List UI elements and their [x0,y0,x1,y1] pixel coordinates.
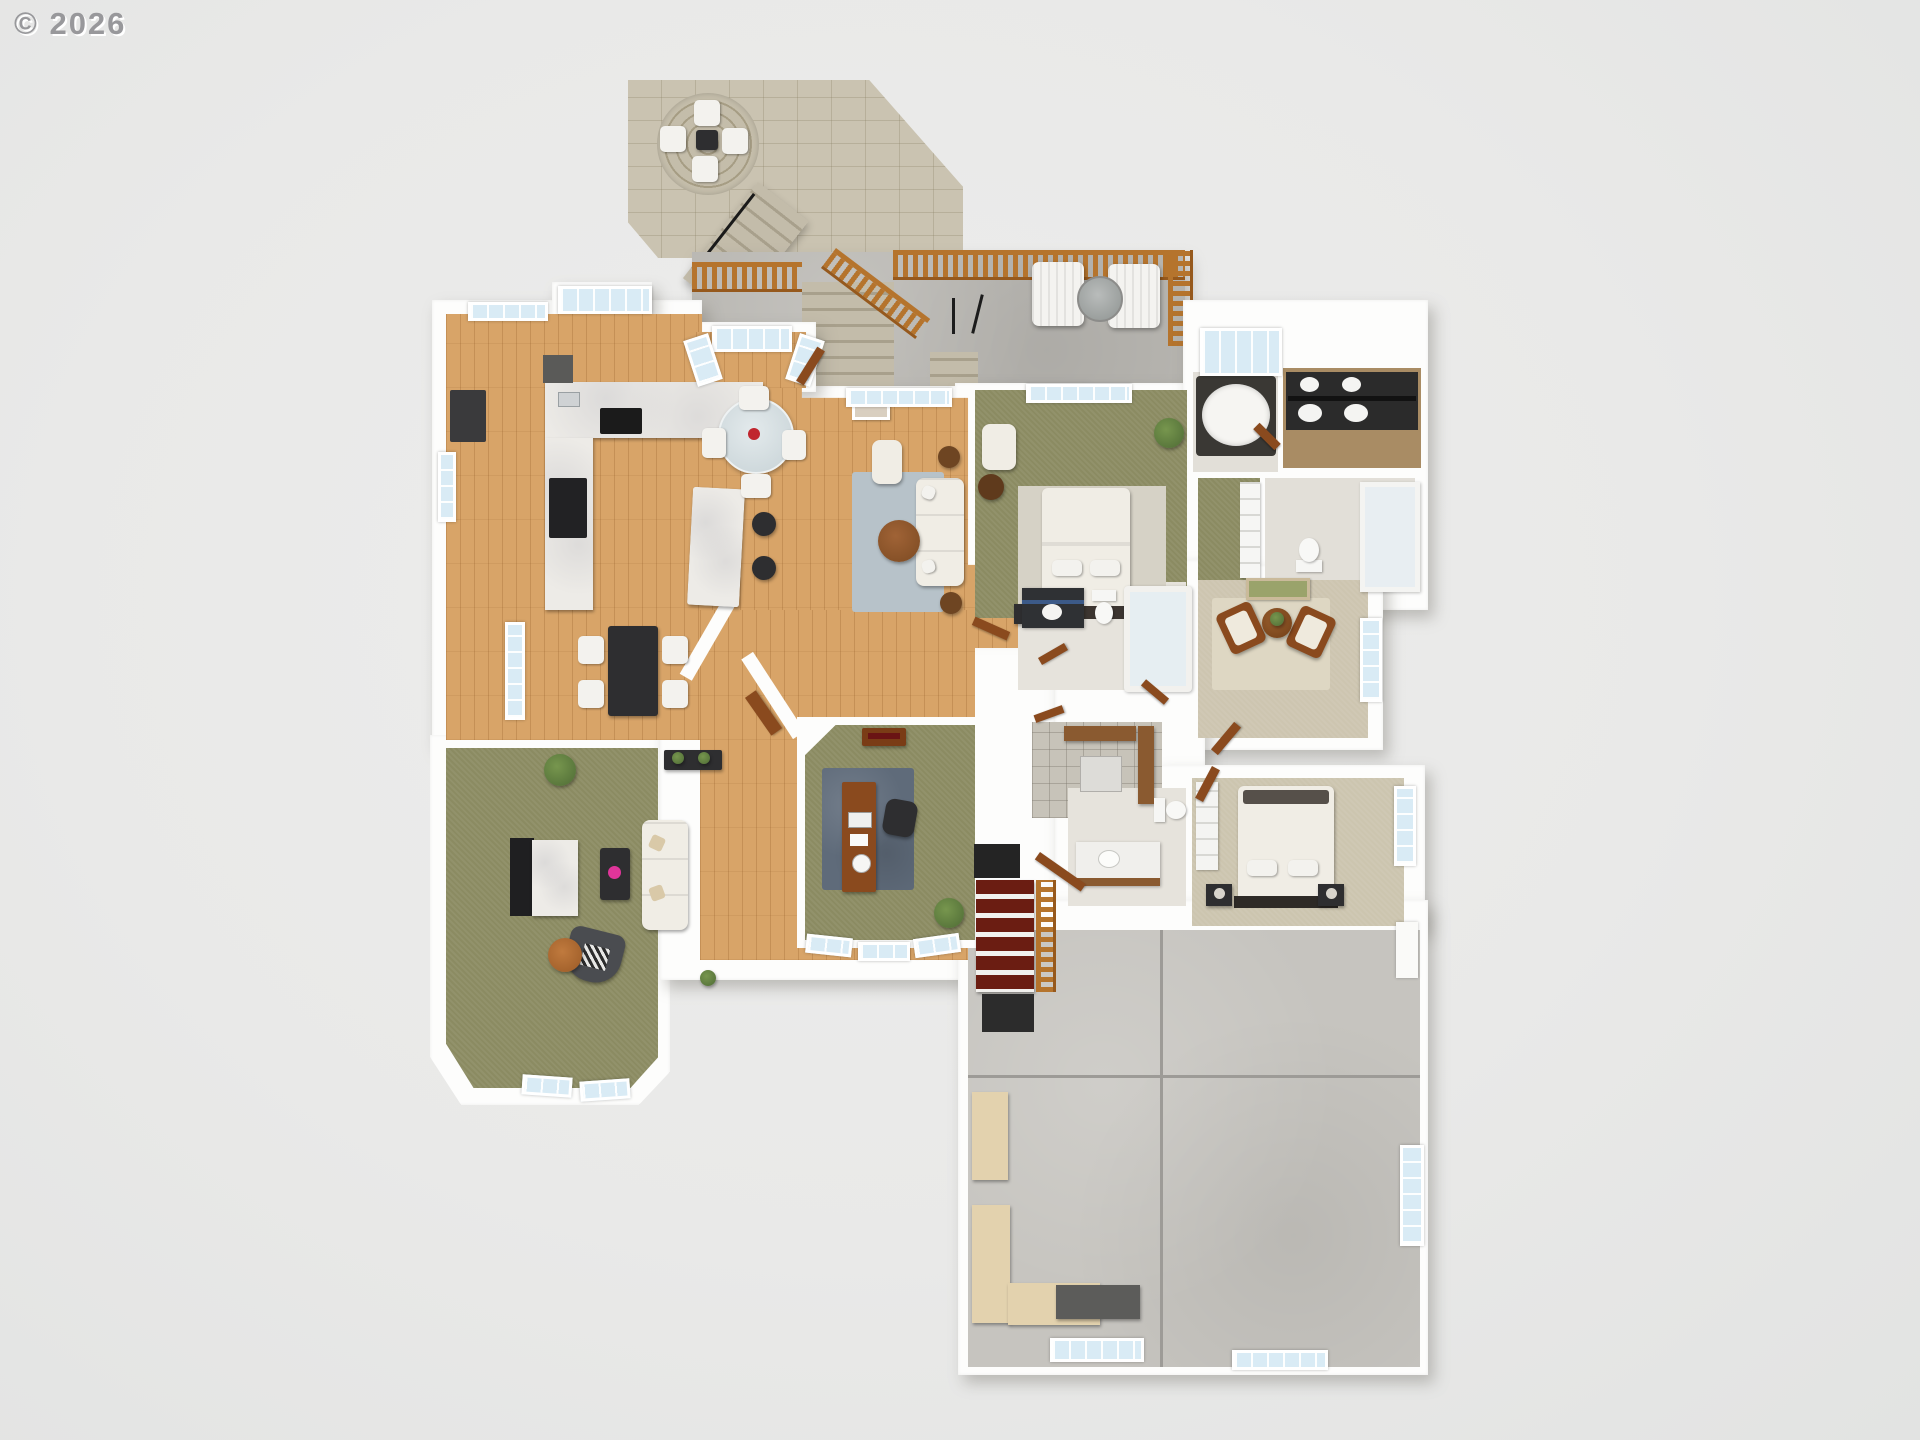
kitchen-sink-bay-window [558,286,652,314]
master-vanity-sink [1300,377,1319,392]
bedroom2-window [1394,786,1416,866]
master-vanity-sink [1298,404,1322,422]
bedroom2-lamp [1214,888,1225,899]
sitting-wall-art [1246,578,1310,600]
patio-chair [660,126,686,152]
family-console-plant [698,752,710,764]
mudroom-cabinet-top [1064,726,1136,741]
garage-cabinet [972,1092,1008,1180]
master-bath-skylight [1200,328,1282,376]
kitchen-wall-oven [549,478,587,538]
master-vanity-divider [1288,396,1416,401]
toilet-bowl [1299,538,1319,562]
kitchen-refrigerator [450,390,486,442]
master-bed-pillow [1052,560,1082,576]
deck-step-handrail [952,298,955,334]
master-vanity-sink [1344,404,1368,422]
floorplan-canvas: © 2026 [0,0,1920,1440]
garage-right-window [1400,1145,1424,1246]
stair-landing-upper [974,844,1020,878]
bath2-toilet-bowl [1166,801,1186,819]
bath2-sink [1098,850,1120,868]
master-vanity-sink [1342,377,1361,392]
bath2-vanity-base [1076,878,1160,886]
deck-glass-table [1077,276,1123,322]
island-stool [752,512,776,536]
family-pink-flowers [608,866,621,879]
kitchen-cooktop [600,408,642,434]
stair-mat-lower [982,994,1034,1032]
nook-bay-window-center [712,326,792,352]
bath2-toilet-tank [1154,798,1165,822]
living-side-table [938,446,960,468]
bedroom2-pillow [1247,860,1277,876]
office-chair [881,797,919,838]
island-stool [752,556,776,580]
family-sectional-sofa [642,820,688,930]
patio-table [696,130,718,150]
office-console-runner [868,733,900,739]
kitchen-left-window [438,452,456,522]
dining-chair [662,680,688,708]
mudroom-cabinet-side [1138,726,1154,804]
family-bay-window [521,1074,572,1097]
patio-chair [692,156,718,182]
nook-chair [739,386,769,410]
garage-bottom-window [1050,1338,1144,1362]
patio-chair [722,128,748,154]
kitchen-island [687,487,745,608]
family-corner-plant [544,754,576,786]
hall-bathtub [1124,586,1192,692]
family-console-plant [672,752,684,764]
basement-stairs [976,880,1034,992]
family-side-table [548,938,582,972]
dining-table [608,626,658,716]
stair-rail-wood [1036,880,1056,992]
garage-side-door [1396,922,1418,978]
master-top-window [1026,384,1132,403]
kitchen-corner-counter [543,355,573,383]
living-armchair [872,440,902,484]
bedroom2-lamp [1326,888,1337,899]
living-room-top-window [846,388,952,407]
kitchen-top-window [468,302,548,321]
office-papers [850,834,868,846]
garage-bottom-window [1232,1350,1328,1370]
walk-in-shower [1360,482,1420,592]
adirondack-chair [1032,262,1084,326]
garage-cabinet [972,1205,1010,1323]
patio-chair [694,100,720,126]
hall-bath-sink [1042,604,1062,620]
garage-joint-vertical [1160,930,1163,1367]
bedroom2-blanket [1243,790,1329,804]
family-small-plant [700,970,716,986]
office-desk-clock [852,854,871,873]
master-armchair [982,424,1016,470]
nook-chair [782,430,806,460]
living-coffee-table [878,520,920,562]
garage-joint-horizontal [968,1075,1420,1078]
hall-toilet-tank [1092,590,1116,601]
sitting-table-plant [1270,612,1284,626]
master-side-table [978,474,1004,500]
fireplace-hearth [532,840,578,916]
dining-chair [578,636,604,664]
living-side-table [940,592,962,614]
soaking-tub [1202,384,1270,446]
office-monitor [848,812,872,828]
mudroom-appliance [1080,756,1122,792]
copyright-watermark: © 2026 [14,6,126,42]
nook-chair [702,428,726,458]
bedroom2-pillow [1288,860,1318,876]
dining-chair [578,680,604,708]
nook-chair [741,474,771,498]
closet-shelving [1240,482,1260,578]
dining-chair [662,636,688,664]
master-bed-pillow [1090,560,1120,576]
dining-room-window [505,622,525,720]
hall-toilet-bowl [1095,602,1113,624]
sitting-room-window [1360,618,1382,702]
office-bay-window [858,942,910,961]
fireplace-surround [510,838,534,916]
deck-railing-left [692,262,802,292]
nook-centerpiece-flowers [748,428,760,440]
family-bay-window [579,1078,630,1101]
master-plant [1154,418,1184,448]
kitchen-sink [558,392,580,407]
floor-family-room [446,748,658,1088]
office-plant [934,898,964,928]
garage-mat [1056,1285,1140,1319]
